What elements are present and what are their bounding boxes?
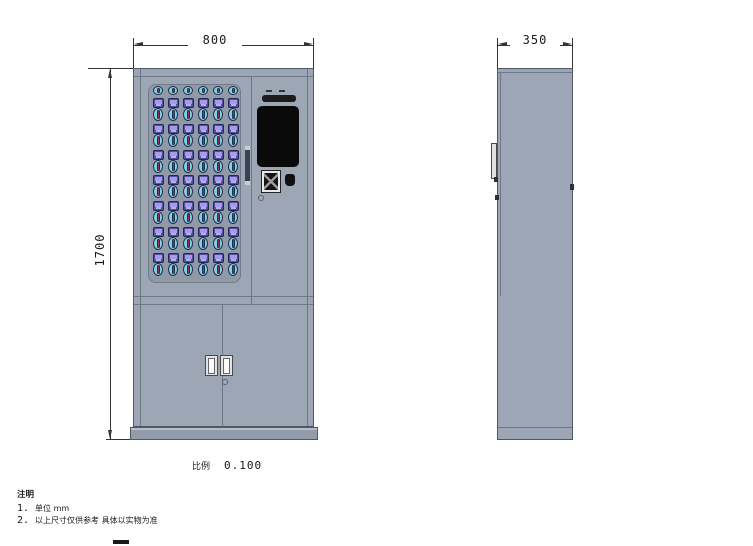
key-head bbox=[228, 134, 238, 147]
dim-label-front-width: 800 bbox=[188, 33, 242, 47]
key-slot-icon bbox=[232, 110, 235, 119]
key-fob-slot bbox=[168, 175, 179, 185]
key-head bbox=[213, 160, 223, 173]
key-cap bbox=[230, 255, 237, 259]
notes-title: 注明 bbox=[17, 489, 158, 501]
key-head bbox=[228, 263, 238, 276]
dim-label-side-depth: 350 bbox=[510, 33, 560, 47]
key-slot-icon bbox=[232, 187, 235, 196]
key-slot-icon bbox=[172, 187, 175, 196]
key-fob-slot bbox=[168, 124, 179, 134]
key-slot-icon bbox=[187, 265, 190, 274]
key-fob-slot bbox=[213, 201, 224, 211]
key-head bbox=[213, 134, 223, 147]
key-fob-slot bbox=[228, 253, 239, 263]
key-head bbox=[183, 263, 193, 276]
key-cap bbox=[155, 126, 162, 130]
key-cap bbox=[215, 177, 222, 181]
qr-scanner-icon bbox=[261, 170, 281, 193]
key-head bbox=[153, 134, 163, 147]
ext-line-right-800 bbox=[313, 38, 314, 68]
key-fob-slot bbox=[168, 227, 179, 237]
lower-keyhole-icon[interactable] bbox=[222, 379, 228, 385]
key-slot-icon bbox=[217, 265, 220, 274]
key-slot-icon bbox=[202, 265, 205, 274]
key-slot-icon bbox=[172, 265, 175, 274]
key-slot-icon bbox=[217, 213, 220, 222]
key-cap bbox=[215, 126, 222, 130]
key-fob-slot bbox=[153, 253, 164, 263]
key-fob-slot bbox=[213, 150, 224, 160]
key-head bbox=[213, 108, 223, 121]
key-cap bbox=[155, 177, 162, 181]
drawing-canvas: 800 1700 350 比例0 bbox=[0, 0, 753, 546]
key-head bbox=[228, 237, 238, 250]
key-fob-slot bbox=[198, 253, 209, 263]
note-line: 2.以上尺寸仅供参考 具体以实物为准 bbox=[17, 515, 158, 527]
key-cap bbox=[170, 177, 177, 181]
key-slot-icon bbox=[187, 213, 190, 222]
key-fob-slot bbox=[198, 98, 209, 108]
key-slot-icon bbox=[232, 213, 235, 222]
key-fob-slot bbox=[153, 124, 164, 134]
key-head bbox=[183, 160, 193, 173]
key-head bbox=[183, 108, 193, 121]
key-slot-icon bbox=[217, 88, 220, 93]
key-head bbox=[198, 263, 208, 276]
key-slot-icon bbox=[217, 239, 220, 248]
arrow-down-icon bbox=[108, 430, 112, 439]
note-line: 1.单位 mm bbox=[17, 503, 158, 515]
key-fob-slot bbox=[228, 98, 239, 108]
key-slot-icon bbox=[172, 213, 175, 222]
key-slot-icon bbox=[217, 162, 220, 171]
key-fob-slot bbox=[228, 150, 239, 160]
front-right-stile-seam bbox=[307, 69, 308, 426]
key-cap bbox=[170, 203, 177, 207]
side-handle-profile bbox=[491, 143, 497, 179]
side-hinge-mark bbox=[570, 184, 574, 190]
side-front-door-gap bbox=[500, 72, 501, 296]
key-head bbox=[213, 86, 223, 95]
key-head bbox=[153, 160, 163, 173]
key-slot-icon bbox=[187, 136, 190, 145]
key-head bbox=[198, 86, 208, 95]
key-cap bbox=[230, 100, 237, 104]
key-head bbox=[213, 185, 223, 198]
front-mid-seam-top bbox=[134, 296, 313, 297]
key-head bbox=[213, 237, 223, 250]
touchscreen[interactable] bbox=[257, 106, 299, 167]
scanner-glass bbox=[264, 173, 278, 190]
key-slot-icon bbox=[187, 187, 190, 196]
key-head bbox=[168, 160, 178, 173]
key-fob-slot bbox=[198, 150, 209, 160]
key-cap bbox=[200, 100, 207, 104]
key-slot-icon bbox=[157, 88, 160, 93]
key-head bbox=[168, 185, 178, 198]
key-head bbox=[198, 108, 208, 121]
key-head bbox=[228, 160, 238, 173]
key-head bbox=[198, 211, 208, 224]
key-slot-icon bbox=[202, 239, 205, 248]
key-slot-icon bbox=[217, 187, 220, 196]
key-head bbox=[168, 86, 178, 95]
speaker-grille-icon bbox=[262, 95, 296, 102]
scale-value: 0.100 bbox=[224, 459, 262, 472]
key-slot-icon bbox=[157, 187, 160, 196]
key-head bbox=[153, 237, 163, 250]
key-cap bbox=[155, 152, 162, 156]
key-head bbox=[153, 263, 163, 276]
arrow-right-icon bbox=[304, 42, 313, 46]
key-slot-icon bbox=[202, 110, 205, 119]
side-latch-mark bbox=[494, 177, 498, 182]
key-cap bbox=[170, 100, 177, 104]
front-mid-seam-bottom bbox=[134, 304, 313, 305]
key-slot-icon bbox=[172, 110, 175, 119]
key-slot-icon bbox=[202, 213, 205, 222]
key-head bbox=[198, 185, 208, 198]
key-fob-slot bbox=[168, 253, 179, 263]
key-slot-icon bbox=[157, 162, 160, 171]
key-cap bbox=[170, 126, 177, 130]
lower-left-door-handle[interactable] bbox=[205, 355, 218, 376]
key-fob-slot bbox=[153, 175, 164, 185]
key-fob-slot bbox=[228, 201, 239, 211]
key-head bbox=[183, 185, 193, 198]
clipped-text-mark bbox=[113, 540, 129, 544]
key-fob-slot bbox=[183, 98, 194, 108]
key-cap bbox=[200, 152, 207, 156]
key-fob-slot bbox=[228, 124, 239, 134]
key-cap bbox=[170, 152, 177, 156]
note-text: 单位 mm bbox=[35, 504, 69, 513]
key-fob-slot bbox=[153, 98, 164, 108]
key-fob-slot bbox=[168, 150, 179, 160]
key-slot-icon bbox=[157, 265, 160, 274]
key-cap bbox=[215, 100, 222, 104]
key-cap bbox=[185, 177, 192, 181]
key-fob-slot bbox=[228, 227, 239, 237]
dim-line-1700 bbox=[110, 68, 111, 440]
key-head bbox=[198, 134, 208, 147]
key-head bbox=[228, 108, 238, 121]
key-cap bbox=[170, 255, 177, 259]
key-fob-slot bbox=[153, 201, 164, 211]
key-slot-icon bbox=[232, 136, 235, 145]
key-fob-slot bbox=[183, 201, 194, 211]
key-head bbox=[198, 237, 208, 250]
front-cabinet-base bbox=[130, 427, 318, 440]
key-cap bbox=[215, 229, 222, 233]
key-slot-icon bbox=[202, 162, 205, 171]
scale-label: 比例 bbox=[192, 462, 210, 472]
key-fob-slot bbox=[198, 201, 209, 211]
key-head bbox=[183, 237, 193, 250]
keyhole-icon[interactable] bbox=[258, 195, 264, 201]
key-head bbox=[228, 211, 238, 224]
key-cap bbox=[230, 229, 237, 233]
key-slot-icon bbox=[232, 239, 235, 248]
key-fob-slot bbox=[198, 124, 209, 134]
key-fob-slot bbox=[213, 124, 224, 134]
key-head bbox=[153, 185, 163, 198]
key-slot-icon bbox=[157, 213, 160, 222]
key-fob-slot bbox=[153, 227, 164, 237]
key-slot-icon bbox=[202, 136, 205, 145]
note-number: 2. bbox=[17, 515, 29, 526]
key-head bbox=[183, 86, 193, 95]
key-fob-slot bbox=[183, 227, 194, 237]
handle-slot bbox=[208, 358, 215, 374]
arrow-left-icon bbox=[498, 42, 507, 46]
key-head bbox=[183, 134, 193, 147]
upper-door-handle[interactable] bbox=[245, 146, 250, 185]
key-cap bbox=[185, 255, 192, 259]
key-fob-slot bbox=[183, 253, 194, 263]
key-head bbox=[168, 134, 178, 147]
key-head bbox=[228, 185, 238, 198]
key-cap bbox=[155, 255, 162, 259]
key-slot-icon bbox=[232, 265, 235, 274]
vent-dash-icon bbox=[279, 90, 285, 92]
key-grid bbox=[148, 84, 241, 283]
key-slot-icon bbox=[172, 136, 175, 145]
key-slot-icon bbox=[187, 110, 190, 119]
key-slot-icon bbox=[202, 88, 205, 93]
key-cap bbox=[200, 203, 207, 207]
arrow-right-icon bbox=[563, 42, 572, 46]
vent-dash-icon bbox=[266, 90, 272, 92]
key-cap bbox=[185, 126, 192, 130]
key-fob-slot bbox=[213, 98, 224, 108]
key-head bbox=[168, 237, 178, 250]
key-cap bbox=[185, 100, 192, 104]
key-fob-slot bbox=[213, 175, 224, 185]
key-slot-icon bbox=[172, 239, 175, 248]
key-fob-slot bbox=[183, 124, 194, 134]
key-slot-icon bbox=[172, 162, 175, 171]
note-text: 以上尺寸仅供参考 具体以实物为准 bbox=[35, 516, 158, 525]
arrow-left-icon bbox=[134, 42, 143, 46]
key-cap bbox=[185, 203, 192, 207]
key-cap bbox=[200, 126, 207, 130]
key-fob-slot bbox=[183, 175, 194, 185]
key-cap bbox=[230, 126, 237, 130]
key-cap bbox=[230, 203, 237, 207]
key-head bbox=[153, 211, 163, 224]
key-fob-slot bbox=[183, 150, 194, 160]
key-fob-slot bbox=[153, 150, 164, 160]
side-base-seam bbox=[498, 427, 572, 428]
key-fob-slot bbox=[228, 175, 239, 185]
key-head bbox=[168, 263, 178, 276]
key-head bbox=[153, 108, 163, 121]
key-cap bbox=[200, 229, 207, 233]
key-fob-slot bbox=[168, 98, 179, 108]
key-slot-icon bbox=[187, 162, 190, 171]
scale-note: 比例0.100 bbox=[192, 459, 262, 472]
arrow-up-icon bbox=[108, 69, 112, 78]
front-left-stile-seam bbox=[140, 69, 141, 426]
side-lock-mark bbox=[495, 195, 499, 200]
lower-right-door-handle[interactable] bbox=[220, 355, 233, 376]
key-cap bbox=[230, 177, 237, 181]
key-cap bbox=[215, 152, 222, 156]
key-cap bbox=[215, 203, 222, 207]
key-fob-slot bbox=[198, 175, 209, 185]
key-cap bbox=[155, 100, 162, 104]
key-head bbox=[213, 263, 223, 276]
key-slot-icon bbox=[217, 110, 220, 119]
key-head bbox=[183, 211, 193, 224]
key-cap bbox=[185, 152, 192, 156]
front-top-rail-seam bbox=[134, 76, 313, 77]
camera-icon bbox=[285, 174, 295, 186]
key-slot-icon bbox=[157, 110, 160, 119]
key-head bbox=[153, 86, 163, 95]
key-head bbox=[228, 86, 238, 95]
key-slot-icon bbox=[187, 88, 190, 93]
key-cap bbox=[155, 203, 162, 207]
key-slot-icon bbox=[232, 88, 235, 93]
key-cap bbox=[200, 255, 207, 259]
key-cap bbox=[185, 229, 192, 233]
key-fob-slot bbox=[198, 227, 209, 237]
key-head bbox=[168, 211, 178, 224]
key-slot-icon bbox=[157, 239, 160, 248]
key-slot-icon bbox=[157, 136, 160, 145]
key-head bbox=[198, 160, 208, 173]
front-upper-divider-seam bbox=[251, 76, 252, 304]
key-slot-icon bbox=[202, 187, 205, 196]
key-cap bbox=[200, 177, 207, 181]
key-slot-icon bbox=[172, 88, 175, 93]
notes-block: 注明 1.单位 mm 2.以上尺寸仅供参考 具体以实物为准 bbox=[17, 489, 158, 527]
key-head bbox=[168, 108, 178, 121]
key-slot-icon bbox=[217, 136, 220, 145]
dim-label-front-height: 1700 bbox=[93, 225, 107, 275]
key-cap bbox=[170, 229, 177, 233]
key-cap bbox=[155, 229, 162, 233]
ext-line-right-350 bbox=[572, 38, 573, 68]
key-fob-slot bbox=[213, 227, 224, 237]
key-fob-slot bbox=[213, 253, 224, 263]
key-cap bbox=[230, 152, 237, 156]
key-fob-slot bbox=[168, 201, 179, 211]
side-cabinet-body bbox=[497, 68, 573, 440]
note-number: 1. bbox=[17, 503, 29, 514]
key-head bbox=[213, 211, 223, 224]
side-top-seam bbox=[498, 72, 572, 73]
key-slot-icon bbox=[232, 162, 235, 171]
key-cap bbox=[215, 255, 222, 259]
key-slot-icon bbox=[187, 239, 190, 248]
handle-slot bbox=[223, 358, 230, 374]
